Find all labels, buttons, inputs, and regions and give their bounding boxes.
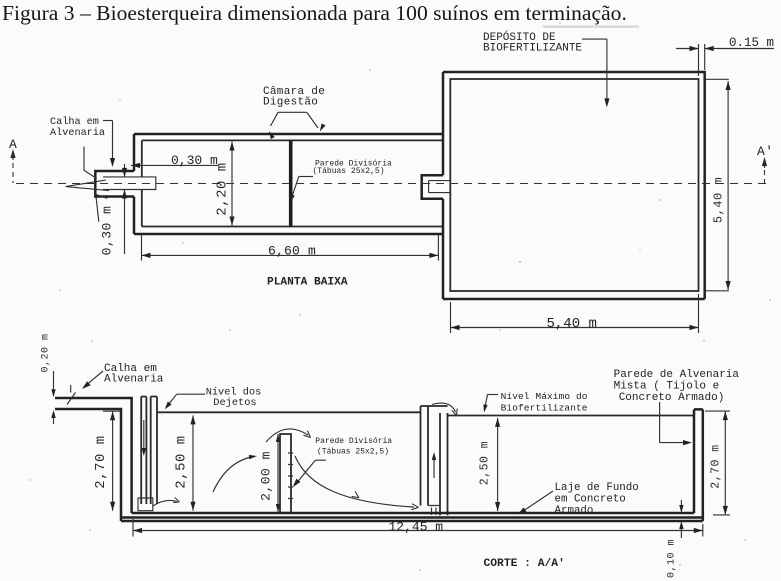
svg-text:Calha em: Calha em <box>50 116 99 128</box>
svg-text:CORTE : A/A': CORTE : A/A' <box>484 558 565 570</box>
svg-text:Alvenaria: Alvenaria <box>104 374 164 386</box>
svg-text:12,45 m: 12,45 m <box>389 520 444 535</box>
svg-text:Mista ( Tijolo e: Mista ( Tijolo e <box>614 381 720 393</box>
svg-text:A': A' <box>757 144 774 159</box>
svg-text:0,20 m: 0,20 m <box>41 333 52 372</box>
svg-text:0.15 m: 0.15 m <box>729 36 774 50</box>
svg-text:Biofertilizante: Biofertilizante <box>501 403 588 414</box>
svg-text:0,10 m: 0,10 m <box>666 539 677 578</box>
svg-text:Armado: Armado <box>555 505 594 517</box>
svg-text:0,30 m: 0,30 m <box>100 206 115 256</box>
svg-text:2,50 m: 2,50 m <box>479 441 492 485</box>
svg-text:Parede Divisória: Parede Divisória <box>315 437 392 446</box>
svg-text:em Concreto: em Concreto <box>555 494 626 506</box>
svg-text:2,70 m: 2,70 m <box>709 444 722 488</box>
svg-text:(Tábuas 25x2,5): (Tábuas 25x2,5) <box>317 448 389 457</box>
svg-text:2,00 m: 2,00 m <box>258 451 273 501</box>
svg-text:2,20 m: 2,20 m <box>215 162 231 215</box>
svg-text:2,50 m: 2,50 m <box>174 435 190 488</box>
svg-text:6,60 m: 6,60 m <box>268 244 316 259</box>
svg-text:Concreto Armado): Concreto Armado) <box>619 392 725 404</box>
svg-text:Digestão: Digestão <box>263 97 318 109</box>
svg-text:Dejetos: Dejetos <box>213 397 256 409</box>
svg-text:(Tábuas 25x2,5): (Tábuas 25x2,5) <box>313 167 385 176</box>
svg-text:PLANTA BAIXA: PLANTA BAIXA <box>267 277 348 289</box>
svg-text:BIOFERTILIZANTE: BIOFERTILIZANTE <box>483 43 582 55</box>
svg-text:Nível Máximo do: Nível Máximo do <box>501 391 588 402</box>
svg-text:Laje de Fundo: Laje de Fundo <box>555 482 639 494</box>
svg-text:0,30 m: 0,30 m <box>171 153 218 168</box>
svg-text:2,70 m: 2,70 m <box>93 435 109 488</box>
svg-text:Alvenaria: Alvenaria <box>50 127 105 139</box>
svg-text:5,40 m: 5,40 m <box>712 177 726 223</box>
svg-text:Parede de Alvenaria: Parede de Alvenaria <box>614 369 740 381</box>
svg-text:5,40 m: 5,40 m <box>547 316 597 332</box>
